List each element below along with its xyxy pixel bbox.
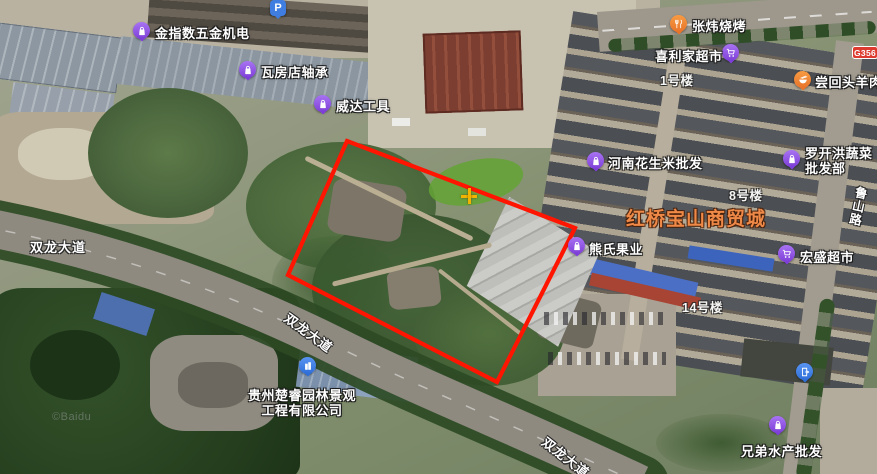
road-badge-g356: G356 [852, 46, 877, 59]
poi-label-henan[interactable]: 河南花生米批发 [608, 153, 703, 172]
poi-label-xilijia[interactable]: 喜利家超市 [655, 46, 723, 65]
food-bowl-icon [798, 75, 808, 85]
map-crosshair-icon [461, 188, 477, 204]
poi-label-xiongdi[interactable]: 兄弟水产批发 [741, 441, 822, 460]
shopping-cart-icon [782, 249, 792, 259]
shopping-bag-icon [572, 241, 582, 251]
poi-label-weida[interactable]: 威达工具 [336, 96, 390, 115]
shopping-cart-icon [726, 48, 736, 58]
door-exit-icon [800, 367, 810, 377]
building-label-14: 14号楼 [682, 297, 723, 316]
poi-pin-xiongdi[interactable] [769, 416, 786, 433]
poi-pin-changhuitou[interactable] [794, 71, 811, 88]
poi-label-company[interactable]: 贵州楚睿园林景观 工程有限公司 [236, 388, 368, 418]
shopping-bag-icon [787, 154, 797, 164]
poi-label-line: 批发部 [805, 161, 873, 176]
building-label-1: 1号楼 [660, 70, 693, 89]
shopping-bag-icon [243, 65, 253, 75]
poi-label-changhuitou[interactable]: 尝回头羊肉 [815, 72, 877, 91]
parking-marker[interactable]: P [270, 0, 286, 16]
parking-icon: P [274, 2, 281, 14]
poi-pin-zhangwei[interactable] [670, 15, 687, 32]
shopping-bag-icon [591, 156, 601, 166]
poi-pin-weida[interactable] [314, 95, 331, 112]
building-label-8: 8号楼 [729, 185, 762, 204]
poi-label-luokaihong[interactable]: 罗开洪蔬菜 批发部 [805, 146, 873, 176]
poi-label-line: 工程有限公司 [236, 403, 368, 418]
restaurant-icon [674, 19, 684, 29]
main-road-layer [0, 0, 877, 474]
shopping-bag-icon [137, 26, 147, 36]
poi-pin-luokaihong[interactable] [783, 150, 800, 167]
company-pin[interactable] [299, 357, 316, 374]
entrance-exit-pin[interactable] [796, 363, 813, 380]
poi-label-xiongshi[interactable]: 熊氏果业 [589, 239, 643, 258]
poi-pin-wafangdian[interactable] [239, 61, 256, 78]
poi-pin-hongsheng[interactable] [778, 245, 795, 262]
building-icon [303, 361, 313, 371]
road-label-shuanglong-left: 双龙大道 [30, 237, 86, 256]
satellite-map[interactable]: P 金指数五金机电 瓦房店轴承 威达工具 张炜烧烤 喜利家超市 尝回头羊肉 河南… [0, 0, 877, 474]
baidu-watermark: ©Baidu [52, 411, 91, 423]
poi-label-line: 罗开洪蔬菜 [805, 146, 873, 161]
shopping-bag-icon [318, 99, 328, 109]
market-area-name: 红桥宝山商贸城 [626, 204, 766, 231]
poi-label-jinzhishu[interactable]: 金指数五金机电 [155, 23, 250, 42]
poi-pin-jinzhishu[interactable] [133, 22, 150, 39]
poi-pin-xiongshi[interactable] [568, 237, 585, 254]
shopping-bag-icon [773, 420, 783, 430]
poi-label-zhangwei[interactable]: 张炜烧烤 [692, 16, 746, 35]
poi-pin-xilijia[interactable] [722, 44, 739, 61]
poi-pin-henan[interactable] [587, 152, 604, 169]
poi-label-line: 贵州楚睿园林景观 [236, 388, 368, 403]
poi-label-wafangdian[interactable]: 瓦房店轴承 [261, 62, 329, 81]
poi-label-hongsheng[interactable]: 宏盛超市 [800, 247, 854, 266]
